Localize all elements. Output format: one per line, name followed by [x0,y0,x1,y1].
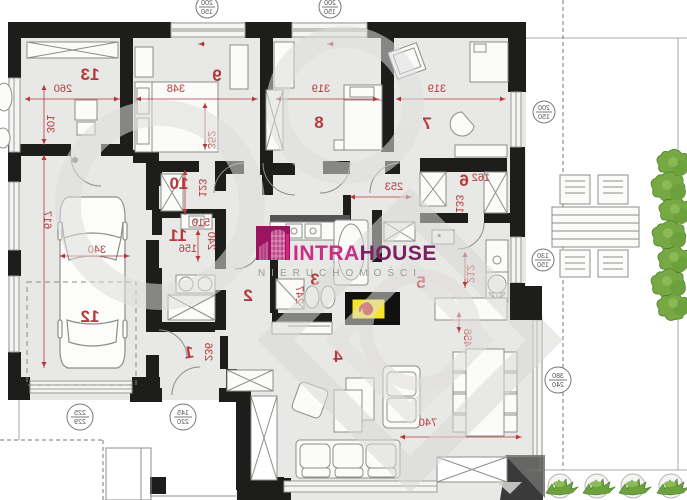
svg-text:2: 2 [243,286,252,305]
svg-text:INTRAHOUSE: INTRAHOUSE [293,242,437,265]
svg-text:253: 253 [385,181,403,193]
svg-text:6: 6 [459,171,468,190]
svg-text:133: 133 [453,195,465,213]
svg-text:130: 130 [537,253,549,260]
svg-text:236: 236 [202,343,214,361]
svg-text:319: 319 [312,83,330,95]
svg-text:380: 380 [552,373,564,380]
svg-text:123: 123 [196,179,208,197]
svg-text:200: 200 [324,0,336,7]
svg-text:156: 156 [179,243,197,255]
svg-text:740: 740 [419,417,437,429]
svg-text:13: 13 [81,65,100,84]
svg-text:7: 7 [422,114,431,133]
svg-text:225: 225 [74,410,86,417]
svg-text:240: 240 [552,382,564,389]
svg-text:150: 150 [324,9,336,16]
svg-text:301: 301 [44,115,56,133]
svg-text:NIERUCHOMOŚCI: NIERUCHOMOŚCI [258,266,422,279]
svg-text:617: 617 [41,211,53,229]
svg-text:150: 150 [538,114,550,121]
svg-text:9: 9 [212,66,221,85]
svg-text:12: 12 [81,307,100,326]
svg-text:162: 162 [472,172,490,184]
svg-text:150: 150 [201,9,213,16]
svg-text:200: 200 [538,105,550,112]
svg-text:145: 145 [177,410,189,417]
svg-text:150: 150 [537,262,549,269]
svg-text:200: 200 [201,0,213,7]
svg-text:260: 260 [54,83,72,95]
svg-text:510: 510 [192,217,210,229]
svg-text:220: 220 [177,419,189,426]
svg-text:10: 10 [170,174,189,193]
svg-text:319: 319 [428,83,446,95]
svg-text:348: 348 [167,83,185,95]
svg-text:8: 8 [314,113,323,132]
svg-text:229: 229 [74,419,86,426]
svg-text:240: 240 [205,232,217,250]
